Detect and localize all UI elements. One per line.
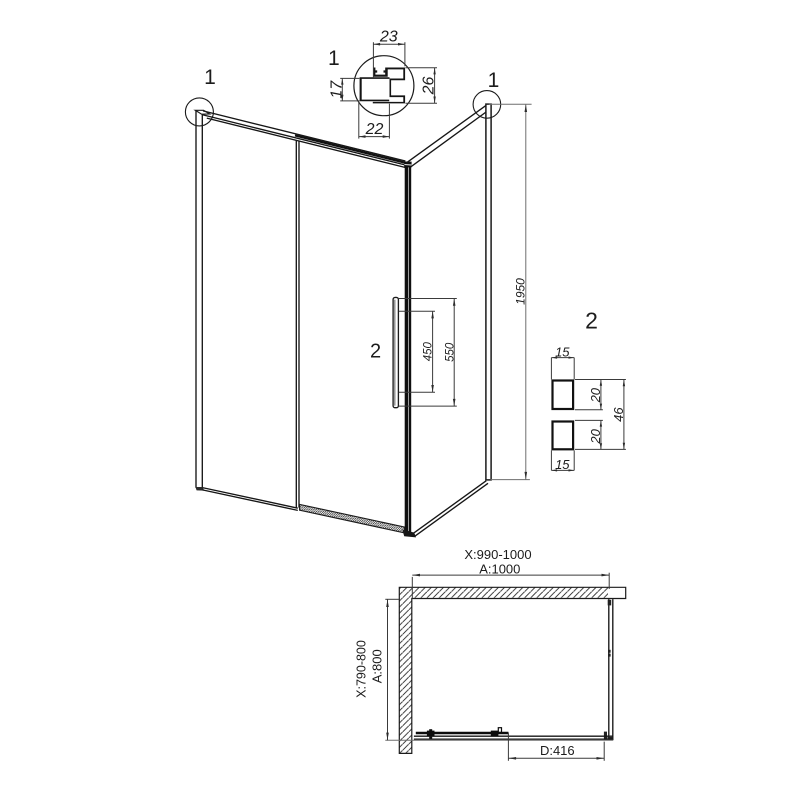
svg-text:2: 2	[585, 308, 598, 334]
svg-text:A:800: A:800	[370, 649, 385, 683]
svg-text:20: 20	[588, 428, 603, 444]
svg-text:23: 23	[379, 29, 398, 46]
svg-text:26: 26	[421, 77, 438, 96]
svg-text:15: 15	[555, 457, 570, 472]
svg-text:20: 20	[588, 387, 603, 403]
svg-text:A:1000: A:1000	[479, 562, 520, 577]
svg-text:15: 15	[555, 344, 570, 359]
svg-text:1: 1	[204, 66, 216, 89]
svg-text:1: 1	[488, 69, 500, 92]
svg-text:X:990-1000: X:990-1000	[464, 547, 531, 562]
svg-text:1: 1	[328, 47, 340, 70]
svg-text:X:790-800: X:790-800	[354, 640, 368, 698]
svg-text:1950: 1950	[513, 278, 527, 305]
svg-text:D:416: D:416	[540, 743, 575, 758]
svg-text:2: 2	[370, 340, 381, 362]
svg-text:550: 550	[444, 342, 456, 362]
svg-text:17: 17	[328, 80, 345, 99]
svg-text:22: 22	[365, 121, 384, 138]
svg-text:46: 46	[611, 407, 626, 422]
svg-text:450: 450	[423, 342, 435, 362]
